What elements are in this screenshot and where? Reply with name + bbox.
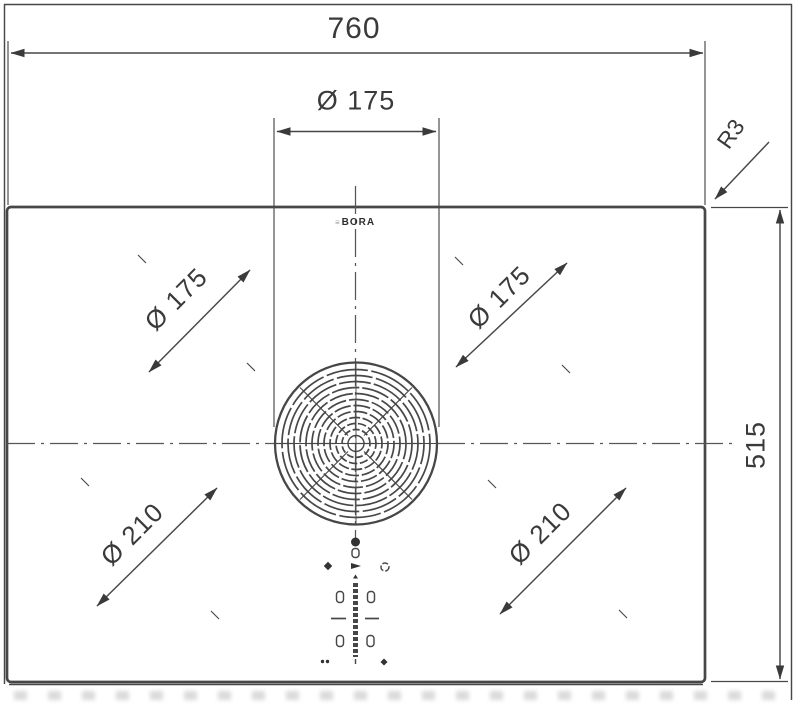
bottom-crop-artifact bbox=[14, 691, 780, 700]
corner-radius-leader bbox=[715, 142, 769, 199]
height-dimension-label: 515 bbox=[743, 421, 770, 469]
up-arrow-icon bbox=[353, 575, 358, 579]
notched-ring-icon bbox=[381, 563, 389, 571]
pointer-arrow-icon bbox=[351, 563, 361, 569]
zone-upper-right-icon bbox=[368, 592, 375, 603]
bora-logo-mark-icon: ≡ bbox=[335, 218, 341, 227]
drawing-frame bbox=[5, 5, 792, 701]
air-inlet-grate-icon bbox=[275, 363, 437, 525]
power-dot-icon bbox=[351, 538, 360, 547]
bora-logo-text: BORA bbox=[342, 217, 375, 228]
diamond-small-icon bbox=[380, 658, 387, 665]
zone-lower-left-icon bbox=[337, 636, 344, 647]
socket-outline-icon bbox=[352, 549, 359, 558]
zone-lower-right-icon bbox=[367, 636, 374, 647]
control-panel bbox=[321, 538, 389, 666]
technical-drawing-page: { "drawing": { "brand": { "logo_text": "… bbox=[0, 0, 800, 706]
zone-upper-left-icon bbox=[337, 592, 344, 603]
dots-icon bbox=[321, 660, 329, 663]
width-dimension bbox=[8, 41, 705, 205]
diamond-icon bbox=[324, 562, 332, 570]
width-dimension-label: 760 bbox=[327, 14, 380, 44]
brand-logo: ≡BORA bbox=[335, 218, 375, 228]
top-diameter-label: Ø 175 bbox=[317, 88, 396, 115]
dimension-linework bbox=[0, 0, 800, 706]
top-diameter-dimension bbox=[274, 118, 439, 427]
